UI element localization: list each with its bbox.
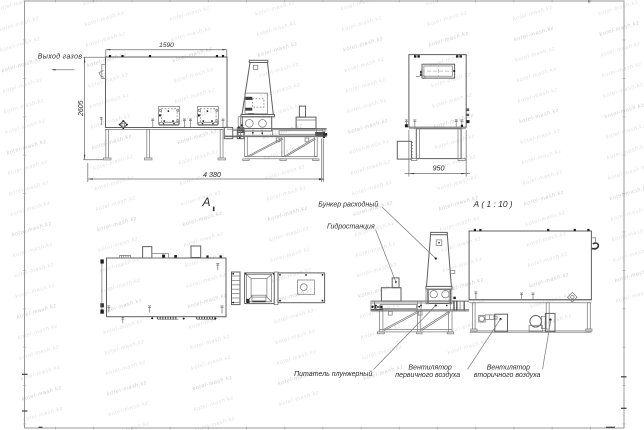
svg-text:kotel-mash.kz: kotel-mash.kz — [610, 205, 644, 223]
svg-text:kotel-mash.kz: kotel-mash.kz — [174, 87, 216, 105]
svg-text:kotel-mash.kz: kotel-mash.kz — [257, 41, 299, 59]
svg-text:kotel-mash.kz: kotel-mash.kz — [344, 56, 386, 74]
svg-text:kotel-mash.kz: kotel-mash.kz — [84, 10, 126, 28]
svg-text:kotel-mash.kz: kotel-mash.kz — [15, 282, 57, 300]
svg-text:kotel-mash.kz: kotel-mash.kz — [14, 262, 56, 280]
svg-text:kotel-mash.kz: kotel-mash.kz — [274, 308, 316, 326]
svg-text:kotel-mash.kz: kotel-mash.kz — [516, 66, 558, 84]
svg-text:kotel-mash.kz: kotel-mash.kz — [183, 231, 225, 249]
svg-text:kotel-mash.kz: kotel-mash.kz — [176, 108, 218, 126]
svg-text:kotel-mash.kz: kotel-mash.kz — [437, 174, 479, 192]
svg-text:kotel-mash.kz: kotel-mash.kz — [93, 154, 135, 172]
svg-text:950: 950 — [433, 163, 445, 172]
svg-text:kotel-mash.kz: kotel-mash.kz — [108, 400, 150, 418]
svg-text:kotel-mash.kz: kotel-mash.kz — [95, 195, 137, 213]
svg-text:kotel-mash.kz: kotel-mash.kz — [255, 0, 297, 18]
svg-text:kotel-mash.kz: kotel-mash.kz — [171, 26, 213, 44]
svg-text:kotel-mash.kz: kotel-mash.kz — [12, 241, 54, 259]
svg-text:kotel-mash.kz: kotel-mash.kz — [105, 359, 147, 377]
svg-text:kotel-mash.kz: kotel-mash.kz — [260, 82, 302, 100]
svg-text:2605: 2605 — [78, 100, 85, 117]
svg-text:kotel-mash.kz: kotel-mash.kz — [611, 225, 644, 243]
svg-text:kotel-mash.kz: kotel-mash.kz — [515, 46, 557, 64]
svg-text:kotel-mash.kz: kotel-mash.kz — [358, 282, 400, 300]
svg-text:kotel-mash.kz: kotel-mash.kz — [527, 251, 569, 269]
svg-text:Выход газов: Выход газов — [38, 53, 83, 61]
svg-text:kotel-mash.kz: kotel-mash.kz — [90, 113, 132, 131]
svg-text:kotel-mash.kz: kotel-mash.kz — [0, 36, 41, 54]
svg-text:вторичного воздуха: вторичного воздуха — [474, 371, 541, 379]
svg-text:kotel-mash.kz: kotel-mash.kz — [343, 36, 385, 54]
svg-text:kotel-mash.kz: kotel-mash.kz — [276, 349, 318, 367]
svg-text:kotel-mash.kz: kotel-mash.kz — [0, 0, 39, 13]
svg-text:kotel-mash.kz: kotel-mash.kz — [22, 406, 64, 424]
svg-text:kotel-mash.kz: kotel-mash.kz — [523, 190, 565, 208]
svg-text:Вентилятор: Вентилятор — [487, 365, 530, 372]
svg-text:kotel-mash.kz: kotel-mash.kz — [609, 184, 644, 202]
svg-text:kotel-mash.kz: kotel-mash.kz — [99, 257, 141, 275]
svg-text:А: А — [202, 195, 211, 209]
svg-text:kotel-mash.kz: kotel-mash.kz — [348, 118, 390, 136]
svg-text:kotel-mash.kz: kotel-mash.kz — [341, 15, 383, 33]
svg-text:kotel-mash.kz: kotel-mash.kz — [96, 216, 138, 234]
svg-text:kotel-mash.kz: kotel-mash.kz — [512, 5, 554, 23]
svg-text:kotel-mash.kz: kotel-mash.kz — [266, 185, 308, 203]
svg-text:Бункер расходный: Бункер расходный — [318, 201, 378, 209]
svg-text:kotel-mash.kz: kotel-mash.kz — [600, 41, 642, 59]
svg-text:kotel-mash.kz: kotel-mash.kz — [101, 298, 143, 316]
svg-text:kotel-mash.kz: kotel-mash.kz — [193, 395, 235, 413]
svg-text:kotel-mash.kz: kotel-mash.kz — [10, 200, 52, 218]
svg-text:kotel-mash.kz: kotel-mash.kz — [345, 77, 387, 95]
svg-text:kotel-mash.kz: kotel-mash.kz — [526, 231, 568, 249]
svg-text:kotel-mash.kz: kotel-mash.kz — [279, 390, 321, 408]
svg-text:kotel-mash.kz: kotel-mash.kz — [427, 10, 469, 28]
svg-text:kotel-mash.kz: kotel-mash.kz — [428, 31, 470, 49]
svg-text:kotel-mash.kz: kotel-mash.kz — [103, 318, 145, 336]
svg-text:kotel-mash.kz: kotel-mash.kz — [2, 77, 44, 95]
svg-text:kotel-mash.kz: kotel-mash.kz — [275, 328, 317, 346]
svg-text:kotel-mash.kz: kotel-mash.kz — [614, 266, 644, 284]
svg-text:kotel-mash.kz: kotel-mash.kz — [186, 272, 228, 290]
svg-text:kotel-mash.kz: kotel-mash.kz — [1, 57, 43, 75]
svg-text:kotel-mash.kz: kotel-mash.kz — [434, 133, 476, 151]
svg-text:kotel-mash.kz: kotel-mash.kz — [21, 385, 63, 403]
svg-text:kotel-mash.kz: kotel-mash.kz — [267, 205, 309, 223]
svg-text:kotel-mash.kz: kotel-mash.kz — [601, 61, 643, 79]
svg-text:первичного воздуха: первичного воздуха — [395, 371, 460, 379]
svg-text:kotel-mash.kz: kotel-mash.kz — [603, 82, 644, 100]
svg-text:kotel-mash.kz: kotel-mash.kz — [608, 164, 644, 182]
svg-text:kotel-mash.kz: kotel-mash.kz — [606, 143, 644, 161]
svg-text:kotel-mash.kz: kotel-mash.kz — [16, 303, 58, 321]
svg-text:kotel-mash.kz: kotel-mash.kz — [181, 190, 223, 208]
svg-text:kotel-mash.kz: kotel-mash.kz — [361, 344, 403, 362]
svg-text:kotel-mash.kz: kotel-mash.kz — [432, 92, 474, 110]
svg-text:kotel-mash.kz: kotel-mash.kz — [182, 210, 224, 228]
svg-text:kotel-mash.kz: kotel-mash.kz — [520, 128, 562, 146]
svg-text:Вентилятор: Вентилятор — [408, 365, 451, 372]
svg-text:kotel-mash.kz: kotel-mash.kz — [173, 67, 215, 85]
svg-text:kotel-mash.kz: kotel-mash.kz — [104, 339, 146, 357]
svg-text:Питатель плунжерный: Питатель плунжерный — [294, 370, 372, 378]
svg-text:kotel-mash.kz: kotel-mash.kz — [169, 5, 211, 23]
svg-text:kotel-mash.kz: kotel-mash.kz — [89, 92, 131, 110]
svg-text:kotel-mash.kz: kotel-mash.kz — [94, 174, 136, 192]
svg-text:kotel-mash.kz: kotel-mash.kz — [529, 272, 571, 290]
svg-text:kotel-mash.kz: kotel-mash.kz — [88, 72, 130, 90]
svg-text:kotel-mash.kz: kotel-mash.kz — [188, 313, 230, 331]
svg-text:kotel-mash.kz: kotel-mash.kz — [5, 118, 47, 136]
svg-text:kotel-mash.kz: kotel-mash.kz — [522, 169, 564, 187]
svg-text:kotel-mash.kz: kotel-mash.kz — [349, 138, 391, 156]
svg-text:kotel-mash.kz: kotel-mash.kz — [192, 375, 234, 393]
svg-text:kotel-mash.kz: kotel-mash.kz — [346, 97, 388, 115]
svg-text:kotel-mash.kz: kotel-mash.kz — [355, 241, 397, 259]
svg-text:kotel-mash.kz: kotel-mash.kz — [17, 323, 59, 341]
svg-text:kotel-mash.kz: kotel-mash.kz — [351, 179, 393, 197]
svg-text:kotel-mash.kz: kotel-mash.kz — [441, 236, 483, 254]
svg-text:kotel-mash.kz: kotel-mash.kz — [517, 87, 559, 105]
svg-text:kotel-mash.kz: kotel-mash.kz — [109, 421, 151, 430]
svg-text:kotel-mash.kz: kotel-mash.kz — [86, 51, 128, 69]
svg-text:Гидростанция: Гидростанция — [327, 222, 375, 230]
svg-text:kotel-mash.kz: kotel-mash.kz — [0, 15, 40, 33]
svg-text:kotel-mash.kz: kotel-mash.kz — [350, 159, 392, 177]
svg-text:kotel-mash.kz: kotel-mash.kz — [605, 123, 644, 141]
svg-text:kotel-mash.kz: kotel-mash.kz — [269, 226, 311, 244]
svg-text:kotel-mash.kz: kotel-mash.kz — [106, 380, 148, 398]
svg-text:kotel-mash.kz: kotel-mash.kz — [442, 256, 484, 274]
svg-text:kotel-mash.kz: kotel-mash.kz — [262, 123, 304, 141]
svg-text:kotel-mash.kz: kotel-mash.kz — [258, 61, 300, 79]
svg-text:kotel-mash.kz: kotel-mash.kz — [518, 107, 560, 125]
svg-text:kotel-mash.kz: kotel-mash.kz — [6, 139, 48, 157]
svg-text:kotel-mash.kz: kotel-mash.kz — [20, 364, 62, 382]
svg-text:kotel-mash.kz: kotel-mash.kz — [98, 236, 140, 254]
svg-text:kotel-mash.kz: kotel-mash.kz — [8, 180, 50, 198]
svg-text:kotel-mash.kz: kotel-mash.kz — [613, 246, 644, 264]
svg-text:kotel-mash.kz: kotel-mash.kz — [191, 354, 233, 372]
svg-text:kotel-mash.kz: kotel-mash.kz — [270, 246, 312, 264]
svg-text:kotel-mash.kz: kotel-mash.kz — [530, 292, 572, 310]
svg-text:1590: 1590 — [159, 42, 174, 49]
svg-text:kotel-mash.kz: kotel-mash.kz — [85, 31, 127, 49]
svg-text:kotel-mash.kz: kotel-mash.kz — [525, 210, 567, 228]
svg-text:kotel-mash.kz: kotel-mash.kz — [91, 133, 133, 151]
svg-text:kotel-mash.kz: kotel-mash.kz — [172, 46, 214, 64]
svg-text:kotel-mash.kz: kotel-mash.kz — [599, 20, 641, 38]
svg-text:kotel-mash.kz: kotel-mash.kz — [11, 221, 53, 239]
svg-text:4 380: 4 380 — [203, 170, 221, 179]
svg-text:kotel-mash.kz: kotel-mash.kz — [521, 148, 563, 166]
svg-text:kotel-mash.kz: kotel-mash.kz — [7, 159, 49, 177]
svg-text:kotel-mash.kz: kotel-mash.kz — [615, 287, 644, 305]
svg-text:kotel-mash.kz: kotel-mash.kz — [598, 0, 640, 18]
svg-text:А ( 1 : 10 ): А ( 1 : 10 ) — [473, 199, 513, 209]
svg-text:kotel-mash.kz: kotel-mash.kz — [177, 128, 219, 146]
svg-text:kotel-mash.kz: kotel-mash.kz — [189, 334, 231, 352]
svg-text:kotel-mash.kz: kotel-mash.kz — [178, 149, 220, 167]
svg-text:kotel-mash.kz: kotel-mash.kz — [513, 25, 555, 43]
svg-text:kotel-mash.kz: kotel-mash.kz — [256, 20, 298, 38]
